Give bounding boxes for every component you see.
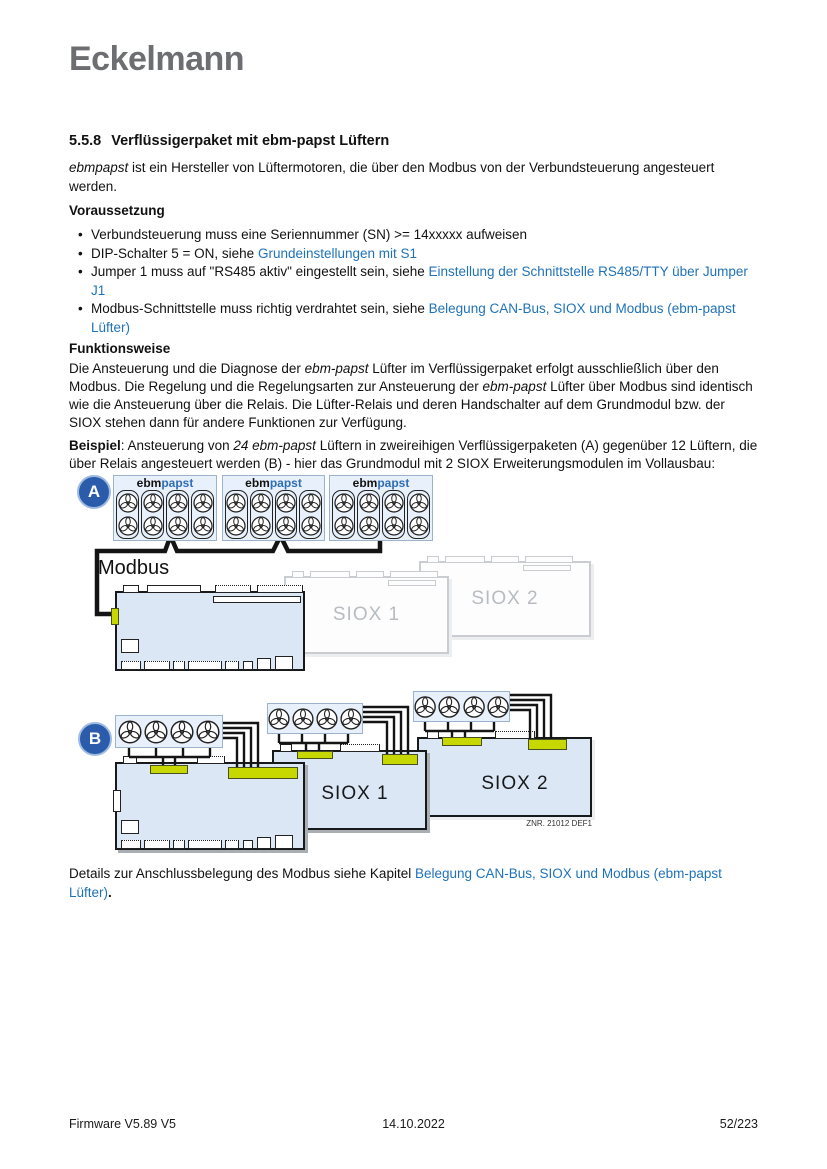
list-item: Verbundsteuerung muss eine Seriennummer … bbox=[69, 226, 758, 245]
connector-block bbox=[445, 556, 485, 563]
fan-pair-pill bbox=[250, 490, 273, 539]
relay-connector bbox=[297, 751, 333, 759]
connector-block bbox=[121, 840, 141, 849]
text-segment: ebmpapst bbox=[69, 160, 128, 175]
fan-icon bbox=[409, 493, 429, 513]
text-segment: ebm-papst bbox=[483, 379, 547, 394]
fan-icon bbox=[118, 493, 138, 513]
ebmpapst-fan-box: ebmpapst bbox=[329, 475, 433, 541]
fan-icon bbox=[359, 516, 379, 536]
brand-ebm: ebm bbox=[353, 476, 378, 490]
connector-block bbox=[188, 840, 222, 849]
relay-connector bbox=[442, 737, 482, 746]
connector-block bbox=[121, 639, 139, 653]
brand-ebm: ebm bbox=[245, 476, 270, 490]
connector-block bbox=[525, 556, 573, 563]
brand-papst: papst bbox=[377, 476, 409, 490]
relay-connector bbox=[150, 765, 188, 774]
connector-block bbox=[225, 840, 239, 849]
connector-block bbox=[121, 661, 141, 670]
fan-icon bbox=[268, 707, 290, 731]
fan-pair-pill bbox=[299, 490, 322, 539]
fan-icon bbox=[301, 493, 321, 513]
connector-block bbox=[188, 661, 222, 670]
ebmpapst-label: ebmpapst bbox=[223, 477, 324, 489]
connector-block bbox=[123, 756, 137, 764]
connector-block bbox=[173, 840, 185, 849]
ebmpapst-fan-box: ebmpapst bbox=[113, 475, 217, 541]
text-segment: 24 ebm-papst bbox=[233, 438, 316, 453]
connector-block bbox=[213, 596, 301, 603]
connector-block bbox=[491, 556, 519, 563]
connector-block bbox=[523, 565, 571, 571]
fan-icon bbox=[143, 493, 163, 513]
fan-icon bbox=[384, 493, 404, 513]
list-item: Jumper 1 muss auf "RS485 aktiv" eingeste… bbox=[69, 263, 758, 300]
text-segment: ebm-papst bbox=[305, 361, 369, 376]
text-segment: Jumper 1 muss auf "RS485 aktiv" eingeste… bbox=[91, 264, 429, 279]
fan-icon bbox=[359, 493, 379, 513]
fan-icon bbox=[118, 720, 142, 744]
connector-block bbox=[144, 661, 170, 670]
connector-block bbox=[390, 571, 438, 578]
fan-icon bbox=[276, 493, 296, 513]
siox1-label: SIOX 1 bbox=[333, 604, 400, 626]
connector-block bbox=[340, 744, 380, 752]
fan-icon bbox=[144, 720, 168, 744]
fan-icon bbox=[438, 695, 460, 719]
connector-block bbox=[388, 580, 436, 586]
fan-icon bbox=[487, 695, 509, 719]
subheading-voraussetzung: Voraussetzung bbox=[69, 202, 758, 220]
subheading-funktionsweise: Funktionsweise bbox=[69, 340, 758, 358]
fan-group bbox=[115, 715, 223, 748]
fan-icon bbox=[334, 493, 354, 513]
modbus-port-connector bbox=[111, 608, 119, 625]
siox2-label: SIOX 2 bbox=[471, 588, 538, 610]
fan-pair-pill bbox=[116, 490, 139, 539]
fan-icon bbox=[292, 707, 314, 731]
fan-group bbox=[413, 691, 510, 722]
drawing-number: ZNR. 21012 DEF1 bbox=[467, 819, 592, 828]
relay-connector bbox=[528, 739, 567, 750]
connector-block bbox=[292, 571, 304, 578]
fan-pair-pill bbox=[141, 490, 164, 539]
diagram-a-badge: A bbox=[77, 475, 111, 509]
intro-paragraph: ebmpapst ist ein Hersteller von Lüftermo… bbox=[69, 159, 758, 196]
fan-icon bbox=[414, 695, 436, 719]
connector-block bbox=[215, 585, 251, 593]
beispiel-paragraph: Beispiel: Ansteuerung von 24 ebm-papst L… bbox=[69, 437, 758, 473]
connector-block bbox=[310, 571, 350, 578]
section-heading: 5.5.8 Verflüssigerpaket mit ebm-papst Lü… bbox=[69, 133, 758, 149]
connector-block bbox=[225, 661, 239, 670]
ebmpapst-label: ebmpapst bbox=[330, 477, 432, 489]
connector-block bbox=[113, 790, 121, 812]
grundmodul bbox=[115, 591, 305, 671]
text-segment: DIP-Schalter 5 = ON, siehe bbox=[91, 246, 258, 261]
fan-icon bbox=[168, 516, 188, 536]
relay-connector bbox=[228, 767, 298, 779]
funktionsweise-paragraph: Die Ansteuerung und die Diagnose der ebm… bbox=[69, 360, 758, 432]
connector-block bbox=[123, 585, 139, 593]
fan-icon bbox=[276, 516, 296, 536]
connector-block bbox=[173, 661, 185, 670]
connector-block bbox=[427, 556, 439, 563]
text-segment: Details zur Anschlussbelegung des Modbus… bbox=[69, 866, 415, 881]
connector-block bbox=[243, 840, 253, 849]
fan-pair-pill bbox=[166, 490, 189, 539]
list-item: Modbus-Schnittstelle muss richtig verdra… bbox=[69, 300, 758, 337]
text-segment: Die Ansteuerung und die Diagnose der bbox=[69, 361, 305, 376]
fan-group bbox=[267, 703, 363, 734]
diagram-b: B bbox=[69, 685, 758, 855]
text-segment: . bbox=[108, 885, 112, 900]
text-segment: Verbundsteuerung muss eine Seriennummer … bbox=[91, 227, 527, 242]
text-segment: Beispiel bbox=[69, 438, 121, 453]
brand-papst: papst bbox=[270, 476, 302, 490]
connector-block bbox=[144, 840, 170, 849]
connector-block bbox=[147, 585, 201, 593]
list-item: DIP-Schalter 5 = ON, siehe Grundeinstell… bbox=[69, 245, 758, 264]
fan-pair-pill bbox=[225, 490, 248, 539]
modbus-label: Modbus bbox=[98, 557, 169, 580]
diagram-b-badge: B bbox=[78, 722, 112, 756]
fan-icon bbox=[168, 493, 188, 513]
fan-pair-pill bbox=[332, 490, 355, 539]
fan-icon bbox=[340, 707, 362, 731]
connector-block bbox=[356, 571, 384, 578]
footer-page-number: 52/223 bbox=[720, 1117, 758, 1131]
connector-block bbox=[121, 820, 139, 834]
fan-pair-pill bbox=[275, 490, 298, 539]
fan-icon bbox=[226, 516, 246, 536]
fan-icon bbox=[226, 493, 246, 513]
fan-icon bbox=[251, 516, 271, 536]
siox2-label: SIOX 2 bbox=[470, 773, 560, 795]
page-content: 5.5.8 Verflüssigerpaket mit ebm-papst Lü… bbox=[69, 133, 758, 902]
fan-icon bbox=[334, 516, 354, 536]
fan-pair-pill bbox=[357, 490, 380, 539]
fan-icon bbox=[384, 516, 404, 536]
ebmpapst-label: ebmpapst bbox=[114, 477, 216, 489]
fan-icon bbox=[301, 516, 321, 536]
fan-icon bbox=[316, 707, 338, 731]
connector-block bbox=[275, 656, 293, 670]
siox1-module-inactive: SIOX 1 bbox=[284, 576, 449, 654]
fan-pair-pill bbox=[407, 490, 430, 539]
fan-icon bbox=[193, 516, 213, 536]
fan-icon bbox=[409, 516, 429, 536]
connector-block bbox=[275, 835, 293, 849]
section-title: Verflüssigerpaket mit ebm-papst Lüftern bbox=[111, 133, 389, 149]
ebmpapst-fan-box: ebmpapst bbox=[222, 475, 325, 541]
fan-icon bbox=[143, 516, 163, 536]
text-segment: : Ansteuerung von bbox=[121, 438, 234, 453]
fan-icon bbox=[463, 695, 485, 719]
connector-block bbox=[257, 658, 271, 670]
connector-block bbox=[197, 756, 225, 764]
connector-block bbox=[243, 661, 253, 670]
relay-connector bbox=[382, 754, 418, 765]
connector-block bbox=[257, 837, 271, 849]
connector-block bbox=[257, 585, 303, 593]
brand-papst: papst bbox=[161, 476, 193, 490]
fan-icon bbox=[196, 720, 220, 744]
document-page: Eckelmann 5.5.8 Verflüssigerpaket mit eb… bbox=[0, 0, 827, 1169]
fan-icon bbox=[118, 516, 138, 536]
section-number: 5.5.8 bbox=[69, 133, 101, 149]
brand-ebm: ebm bbox=[137, 476, 162, 490]
footer-date: 14.10.2022 bbox=[0, 1117, 827, 1131]
connector-block bbox=[280, 744, 292, 752]
diagram-a: A ebmpapst ebmpapst ebmpapst Modbus SIOX… bbox=[69, 473, 758, 685]
text-segment: Modbus-Schnittstelle muss richtig verdra… bbox=[91, 301, 429, 316]
connector-block bbox=[427, 731, 439, 739]
prerequisite-list: Verbundsteuerung muss eine Seriennummer … bbox=[69, 226, 758, 337]
fan-pair-pill bbox=[191, 490, 214, 539]
fan-icon bbox=[193, 493, 213, 513]
fan-icon bbox=[251, 493, 271, 513]
closing-paragraph: Details zur Anschlussbelegung des Modbus… bbox=[69, 865, 758, 902]
company-logo: Eckelmann bbox=[69, 40, 244, 79]
text-segment: ist ein Hersteller von Lüftermotoren, di… bbox=[69, 160, 714, 194]
fan-pair-pill bbox=[382, 490, 405, 539]
siox1-label: SIOX 1 bbox=[315, 783, 395, 805]
connector-block bbox=[495, 731, 535, 739]
fan-icon bbox=[170, 720, 194, 744]
inline-link[interactable]: Grundeinstellungen mit S1 bbox=[258, 246, 417, 261]
